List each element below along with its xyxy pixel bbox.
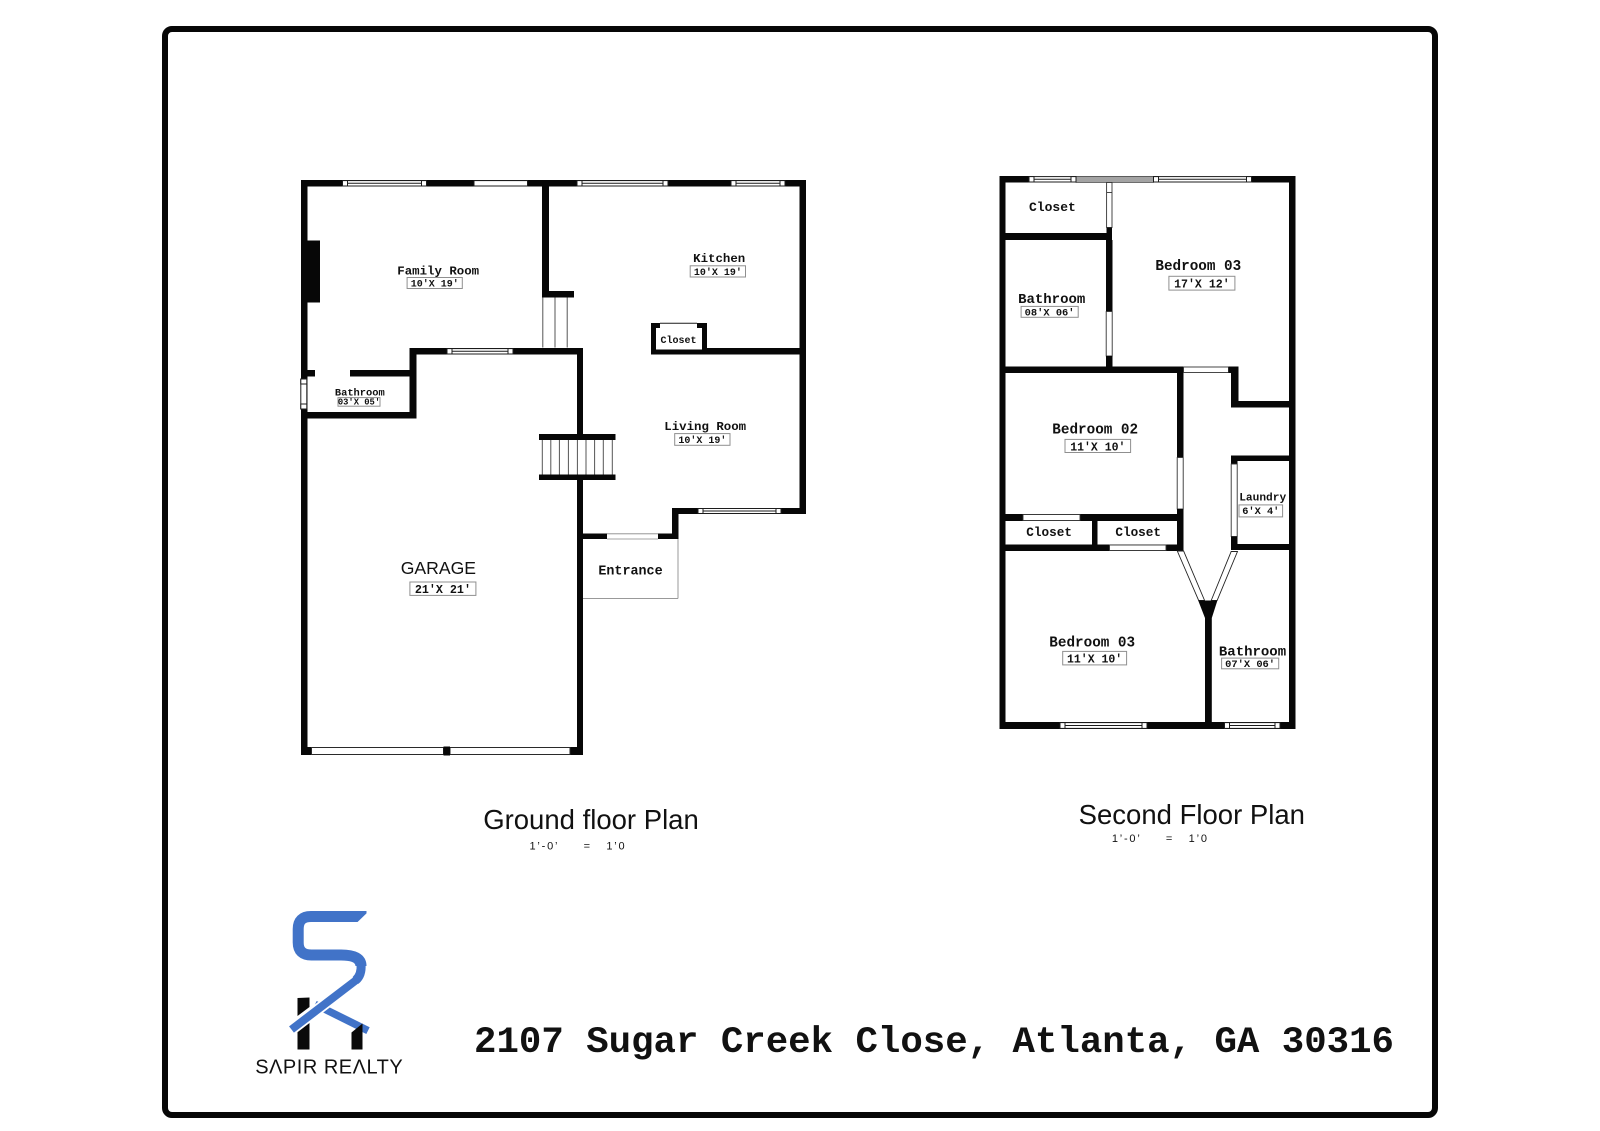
svg-text:Laundry: Laundry: [1239, 492, 1286, 504]
svg-text:08'X 06': 08'X 06': [1025, 307, 1075, 319]
svg-text:Closet: Closet: [660, 335, 696, 347]
svg-text:Closet: Closet: [1115, 525, 1161, 540]
svg-text:Closet: Closet: [1026, 525, 1072, 540]
svg-text:Entrance: Entrance: [598, 564, 662, 579]
svg-text:1’-0’ = 1’0: 1’-0’ = 1’0: [530, 841, 627, 853]
svg-text:11'X 10': 11'X 10': [1070, 441, 1125, 454]
svg-text:11'X 10': 11'X 10': [1067, 653, 1122, 666]
svg-text:2107 Sugar Creek Close, Atlant: 2107 Sugar Creek Close, Atlanta, GA 3031…: [474, 1022, 1394, 1064]
svg-text:Family Room: Family Room: [397, 264, 479, 278]
svg-text:Bathroom: Bathroom: [1018, 292, 1085, 308]
svg-text:1’-0’ = 1’0: 1’-0’ = 1’0: [1112, 833, 1209, 845]
svg-text:10'X 19': 10'X 19': [678, 435, 726, 447]
svg-text:6'X 4': 6'X 4': [1242, 506, 1279, 518]
svg-text:Ground floor Plan: Ground floor Plan: [483, 804, 699, 835]
svg-text:Living Room: Living Room: [664, 420, 746, 434]
svg-text:21'X 21': 21'X 21': [415, 583, 471, 597]
svg-text:03'X 05': 03'X 05': [338, 398, 380, 408]
svg-text:Kitchen: Kitchen: [693, 252, 745, 266]
svg-text:10'X 19': 10'X 19': [694, 267, 742, 279]
svg-text:10'X 19': 10'X 19': [411, 279, 459, 291]
svg-text:Bedroom 03: Bedroom 03: [1155, 259, 1241, 275]
svg-text:17'X 12': 17'X 12': [1174, 278, 1230, 291]
svg-text:Bedroom 03: Bedroom 03: [1049, 635, 1135, 651]
svg-text:SΛPIR REΛLTY: SΛPIR REΛLTY: [255, 1057, 403, 1079]
svg-text:Second Floor Plan: Second Floor Plan: [1079, 799, 1305, 830]
svg-text:07'X 06': 07'X 06': [1225, 659, 1275, 671]
svg-text:Bedroom 02: Bedroom 02: [1052, 422, 1138, 438]
svg-text:Closet: Closet: [1029, 200, 1076, 215]
svg-text:GARAGE: GARAGE: [401, 558, 476, 578]
